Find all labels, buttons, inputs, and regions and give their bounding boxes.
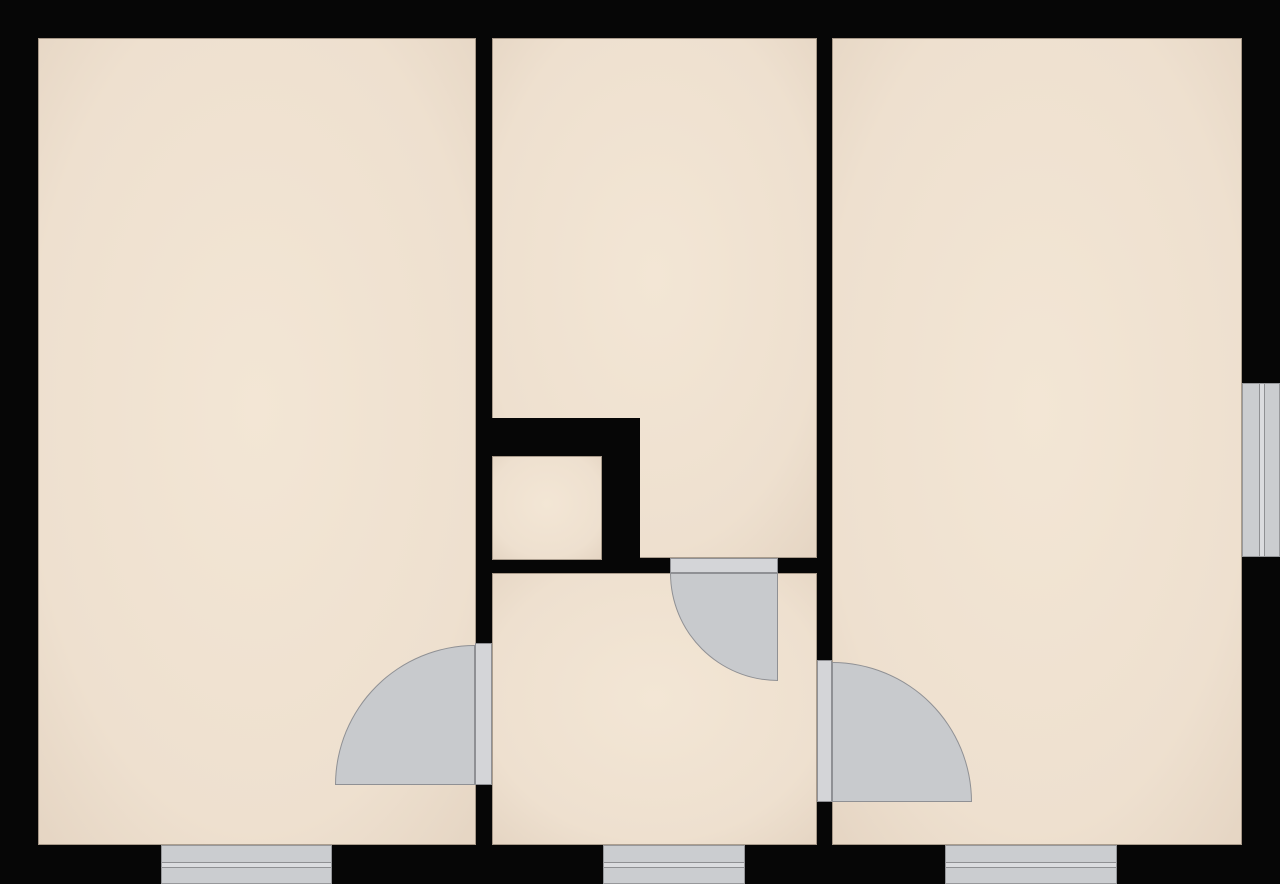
window-east-pane-line-2: [1264, 384, 1265, 556]
window-bottom-right: [945, 845, 1117, 884]
window-bottom-middle-pane-line-2: [604, 867, 744, 868]
door-top-middle-room-to-hallway-leaf: [670, 558, 778, 573]
room-closet-floor: [492, 456, 602, 560]
window-bottom-right-pane-line-2: [946, 867, 1116, 868]
floorplan-canvas: [0, 0, 1280, 884]
window-bottom-middle: [603, 845, 745, 884]
door-left-room-to-hallway-leaf: [475, 643, 492, 785]
door-hallway-to-right-room-leaf: [817, 660, 832, 802]
window-bottom-left-pane-line-2: [162, 867, 331, 868]
window-east: [1242, 383, 1280, 557]
window-bottom-left: [161, 845, 332, 884]
